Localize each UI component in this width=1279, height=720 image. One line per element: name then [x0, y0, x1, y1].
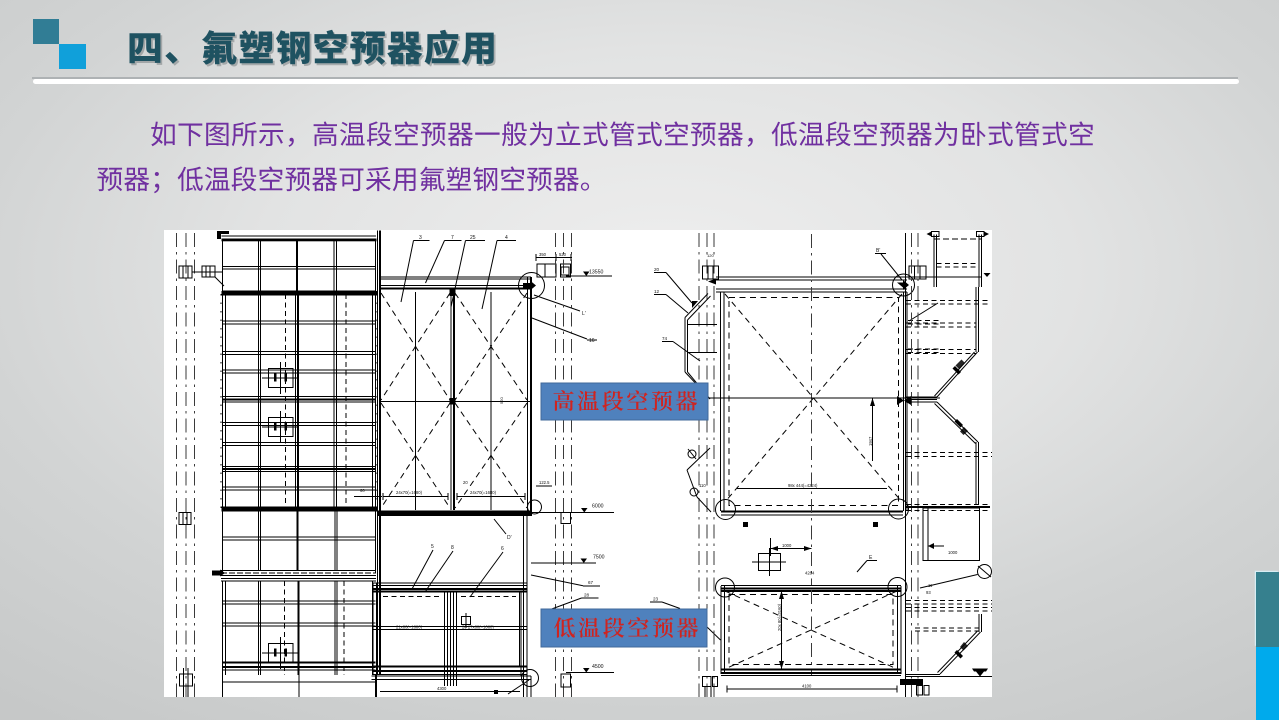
- svg-text:1947: 1947: [868, 436, 873, 446]
- svg-text:4500: 4500: [592, 664, 604, 670]
- svg-text:98x 444(=4224): 98x 444(=4224): [788, 483, 818, 488]
- svg-text:110: 110: [699, 483, 706, 488]
- svg-text:120: 120: [707, 253, 714, 258]
- svg-text:7500: 7500: [593, 555, 605, 561]
- svg-text:67: 67: [588, 580, 594, 585]
- svg-text:20: 20: [654, 267, 660, 272]
- svg-text:122.5: 122.5: [539, 480, 550, 485]
- svg-text:D': D': [507, 535, 512, 541]
- svg-text:5: 5: [431, 544, 434, 550]
- svg-text:12: 12: [654, 289, 660, 294]
- svg-text:13550: 13550: [589, 270, 604, 276]
- svg-text:6: 6: [501, 546, 504, 552]
- svg-text:L': L': [582, 311, 586, 317]
- svg-text:28: 28: [584, 593, 590, 598]
- svg-text:20: 20: [463, 480, 468, 485]
- svg-text:8: 8: [451, 545, 454, 551]
- svg-text:4100: 4100: [802, 684, 812, 689]
- svg-text:24x70(=1680): 24x70(=1680): [470, 490, 497, 495]
- svg-text:1000: 1000: [782, 543, 792, 548]
- svg-text:520: 520: [499, 397, 504, 404]
- svg-text:23: 23: [653, 597, 659, 602]
- svg-text:1000: 1000: [948, 550, 958, 555]
- svg-text:520: 520: [559, 252, 567, 257]
- svg-text:21x80(=1680): 21x80(=1680): [396, 625, 423, 630]
- svg-text:16: 16: [589, 338, 595, 344]
- svg-text:93: 93: [926, 590, 931, 595]
- svg-text:74: 74: [662, 336, 668, 341]
- svg-text:60: 60: [360, 488, 365, 493]
- svg-text:6000: 6000: [592, 504, 604, 510]
- svg-text:350: 350: [539, 252, 547, 257]
- svg-text:24x70(=1680): 24x70(=1680): [396, 490, 423, 495]
- svg-text:11: 11: [928, 583, 933, 588]
- svg-text:4300: 4300: [437, 686, 447, 691]
- svg-text:4284: 4284: [805, 571, 815, 576]
- svg-text:20x 80(=3160): 20x 80(=3160): [777, 603, 782, 631]
- svg-text:20 27x80(=1680): 20 27x80(=1680): [462, 625, 494, 630]
